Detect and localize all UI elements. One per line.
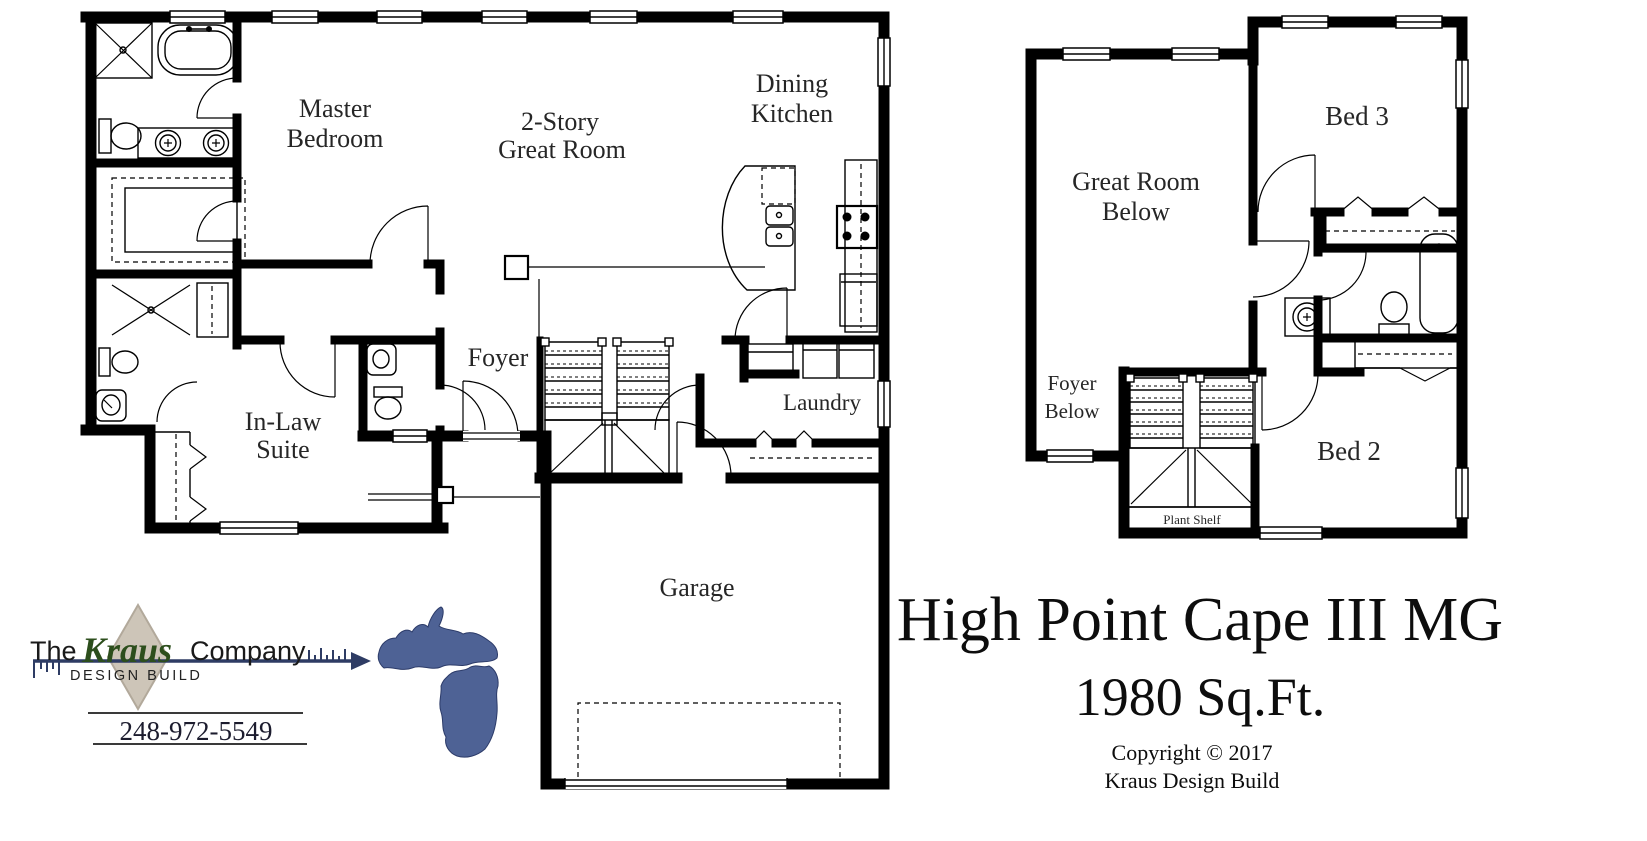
- linen-closet: [197, 283, 228, 337]
- front-porch: [368, 487, 540, 503]
- door-arc: [1262, 374, 1318, 430]
- toilet-icon: [1379, 292, 1409, 335]
- double-vanity-icon: [138, 128, 237, 158]
- toilet-icon: [99, 119, 141, 153]
- kitchen-fixtures: [722, 160, 877, 332]
- door-arc: [1258, 155, 1315, 212]
- kraus-logo: The Kraus Company DESIGN BUILD 248-972-5…: [30, 605, 498, 757]
- in-law-suite-label-line-1: In-Law: [245, 407, 322, 436]
- door-arc: [157, 382, 197, 422]
- plan-title: High Point Cape III MG: [897, 586, 1503, 654]
- foyer-below-label-line-2: Below: [1045, 399, 1101, 423]
- logo-name: Kraus: [81, 630, 172, 670]
- washer-icon: [803, 343, 837, 378]
- in-law-suite-label-line-2: Suite: [256, 435, 309, 464]
- door-arc: [280, 342, 335, 397]
- door-arc: [197, 201, 237, 241]
- toilet-icon: [374, 387, 402, 419]
- door-arc: [370, 206, 428, 264]
- front-door-arc: [463, 381, 518, 436]
- great-room-overlook: [505, 256, 765, 340]
- door-arc: [197, 78, 237, 118]
- kitchen-island: [722, 166, 795, 290]
- sink-icon: [96, 390, 126, 421]
- bathtub-icon: [158, 25, 238, 75]
- foyer-below-label-line-1: Foyer: [1048, 371, 1097, 395]
- copyright-line-1: Copyright © 2017: [1112, 740, 1273, 765]
- porch-post-icon: [437, 487, 453, 503]
- bed2-closet: [1355, 340, 1458, 381]
- garage-label: Garage: [659, 573, 734, 602]
- great-room-label-line-1: 2-Story: [521, 107, 599, 136]
- floor-plan-canvas: Master Bedroom 2-Story Great Room Dining…: [0, 0, 1647, 841]
- door-swings-second-floor: [1253, 155, 1366, 430]
- logo-prefix: The: [30, 636, 77, 666]
- master-bath-fixtures: [95, 23, 238, 158]
- inlaw-suite-closet: [150, 432, 206, 528]
- master-bedroom-label-line-1: Master: [299, 94, 372, 123]
- dining-kitchen-label-line-2: Kitchen: [751, 99, 833, 128]
- range-icon: [837, 206, 877, 248]
- bed-3-label: Bed 3: [1325, 101, 1389, 131]
- dryer-icon: [839, 343, 874, 378]
- door-arc: [1253, 241, 1309, 297]
- plant-shelf-label: Plant Shelf: [1163, 512, 1221, 527]
- great-room-below-label-line-2: Below: [1102, 197, 1170, 226]
- great-room-below-label-line-1: Great Room: [1072, 167, 1200, 196]
- column-icon: [505, 256, 528, 279]
- logo-tagline: DESIGN BUILD: [70, 668, 202, 684]
- vanity-sink-icon: [1285, 298, 1330, 336]
- garage-apron: [578, 703, 840, 777]
- great-room-label-line-2: Great Room: [498, 135, 626, 164]
- powder-room-fixtures: [367, 344, 402, 419]
- master-bedroom-label-line-2: Bedroom: [287, 124, 384, 153]
- dining-kitchen-label-line-1: Dining: [756, 69, 828, 98]
- stairs-first-floor: [541, 338, 673, 478]
- second-floor-plan: Great Room Below Bed 3 Foyer Below Bed 2…: [1031, 16, 1468, 539]
- master-closet: [112, 178, 245, 262]
- plan-area: 1980 Sq.Ft.: [1075, 667, 1326, 727]
- sink-icon: [367, 344, 396, 375]
- door-arc: [735, 288, 787, 340]
- bifold-door-icon: [190, 445, 206, 521]
- logo-suffix: Company: [190, 636, 306, 666]
- second-floor-exterior-walls: [1031, 22, 1462, 533]
- toilet-icon: [99, 348, 138, 376]
- bifold-door-icon: [1400, 368, 1450, 381]
- bed-2-label: Bed 2: [1317, 436, 1381, 466]
- garage-details: [463, 431, 840, 789]
- stairs-second-floor: [1126, 374, 1257, 533]
- phone-number: 248-972-5549: [120, 716, 273, 746]
- michigan-icon: [378, 607, 498, 757]
- laundry-label: Laundry: [783, 390, 861, 415]
- shower-icon: [112, 285, 190, 335]
- phone-block: 248-972-5549: [88, 713, 307, 746]
- title-block: High Point Cape III MG 1980 Sq.Ft. Copyr…: [897, 586, 1503, 793]
- copyright-line-2: Kraus Design Build: [1105, 768, 1280, 793]
- floor-plan-sheet: Master Bedroom 2-Story Great Room Dining…: [0, 0, 1647, 841]
- door-arc: [1318, 252, 1366, 300]
- foyer-label: Foyer: [468, 343, 529, 372]
- inlaw-bath-fixtures: [96, 283, 228, 421]
